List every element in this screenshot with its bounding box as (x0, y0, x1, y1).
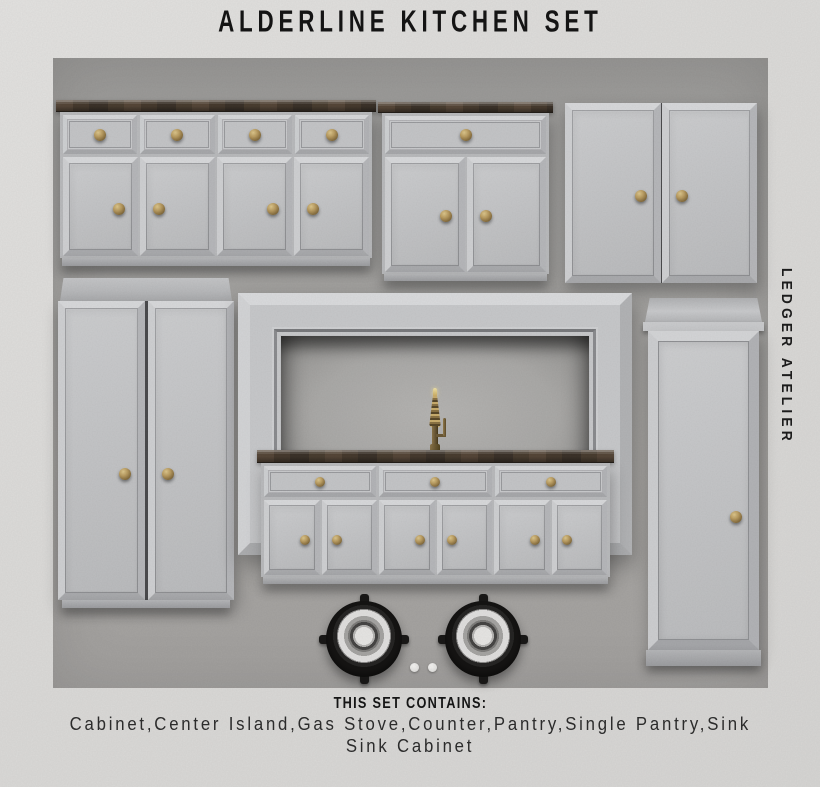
footer-items-line1: Cabinet,Center Island,Gas Stove,Counter,… (69, 714, 750, 735)
drawer-knob (430, 477, 440, 487)
island-counter-body (261, 463, 610, 577)
cabinet-door (385, 157, 465, 272)
pantry-doors (58, 301, 234, 600)
wood-countertop (56, 100, 376, 112)
drawer-knob (249, 129, 261, 141)
drawer-knob (326, 129, 338, 141)
header: ALDERLINE KITCHEN SET (0, 6, 820, 38)
pantry-door (58, 301, 145, 600)
single-pantry-frame (648, 331, 759, 650)
drawer-knob (315, 477, 325, 487)
doors-row (60, 156, 372, 258)
door-knob (153, 203, 165, 215)
drawer-knob (460, 129, 472, 141)
stove-burner-right (438, 594, 528, 684)
drawer-knob (171, 129, 183, 141)
single-pantry-crown (645, 298, 762, 322)
gas-stove (303, 588, 563, 688)
door-knob (440, 210, 452, 222)
door-knob (447, 535, 457, 545)
counter-unit (378, 102, 553, 281)
footer-heading: THIS SET CONTAINS: (333, 695, 487, 713)
cabinet-door (662, 103, 758, 283)
cabinet-top-left (56, 100, 376, 274)
door-knob (113, 203, 125, 215)
cabinet-base (62, 258, 370, 266)
doors-row (261, 499, 610, 577)
pantry-door (659, 342, 748, 639)
drawer (264, 466, 376, 497)
footer-line2-wrap: Sink Cabinet (0, 736, 820, 757)
door-knob (332, 535, 342, 545)
drawer (379, 466, 491, 497)
drawer (140, 115, 214, 154)
drawer-row (382, 113, 549, 156)
showcase-panel (53, 58, 768, 688)
cabinet-door (565, 103, 661, 283)
door-knob (562, 535, 572, 545)
faucet-tip (433, 388, 437, 397)
door-knob (480, 210, 492, 222)
poster-root: ALDERLINE KITCHEN SET LEDGER ATELIER (0, 0, 820, 787)
page-title: ALDERLINE KITCHEN SET (218, 5, 603, 40)
door-knob (307, 203, 319, 215)
door-knob (415, 535, 425, 545)
cabinet-door (63, 157, 138, 256)
burner-disc (326, 601, 402, 677)
door-knob (162, 468, 174, 480)
cabinet-door (467, 157, 547, 272)
door-knob (530, 535, 540, 545)
cabinet-door (494, 500, 550, 575)
wood-countertop (257, 450, 614, 463)
wood-countertop (378, 102, 553, 113)
cabinet-door (140, 157, 215, 256)
cabinet-door (264, 500, 320, 575)
island-base (263, 577, 608, 584)
pantry-top-surface (60, 278, 232, 301)
drawer-row (261, 463, 610, 499)
doors-row (382, 156, 549, 274)
wall-cabinet (565, 103, 757, 283)
door-knob (635, 190, 647, 202)
counter-base (384, 274, 547, 281)
cabinet-door (379, 500, 435, 575)
cabinet-door (437, 500, 493, 575)
brand-vertical-text: LEDGER ATELIER (778, 268, 795, 470)
footer-items-line2: Sink Cabinet (346, 736, 474, 757)
stove-knob-dot (410, 663, 419, 672)
cabinet-door (322, 500, 378, 575)
drawer (63, 115, 137, 154)
faucet (423, 388, 447, 452)
pantry-door (148, 301, 235, 600)
faucet-neck (429, 396, 441, 428)
counter-body (382, 113, 549, 274)
door-knob (300, 535, 310, 545)
single-pantry (643, 298, 764, 668)
cabinet-door (217, 157, 292, 256)
drawer-knob (546, 477, 556, 487)
faucet-handle (443, 418, 446, 436)
footer-line1-wrap: Cabinet,Center Island,Gas Stove,Counter,… (0, 714, 820, 735)
drawer-knob (94, 129, 106, 141)
door-knob (676, 190, 688, 202)
center-island (238, 293, 632, 585)
stove-burner-left (319, 594, 409, 684)
pantry-base (62, 600, 230, 608)
drawer (495, 466, 607, 497)
island-counter (257, 450, 614, 585)
pantry-double (58, 278, 234, 610)
footer: THIS SET CONTAINS: (0, 695, 820, 713)
burner-disc (445, 601, 521, 677)
single-pantry-base (646, 650, 761, 666)
drawer (295, 115, 369, 154)
drawer (218, 115, 292, 154)
door-knob (119, 468, 131, 480)
cabinet-door (294, 157, 369, 256)
single-pantry-ledge (643, 322, 764, 331)
drawer (385, 116, 546, 154)
door-knob (267, 203, 279, 215)
stove-knob-dot (428, 663, 437, 672)
cabinet-body (60, 112, 372, 258)
cabinet-door (552, 500, 608, 575)
drawer-row (60, 112, 372, 156)
